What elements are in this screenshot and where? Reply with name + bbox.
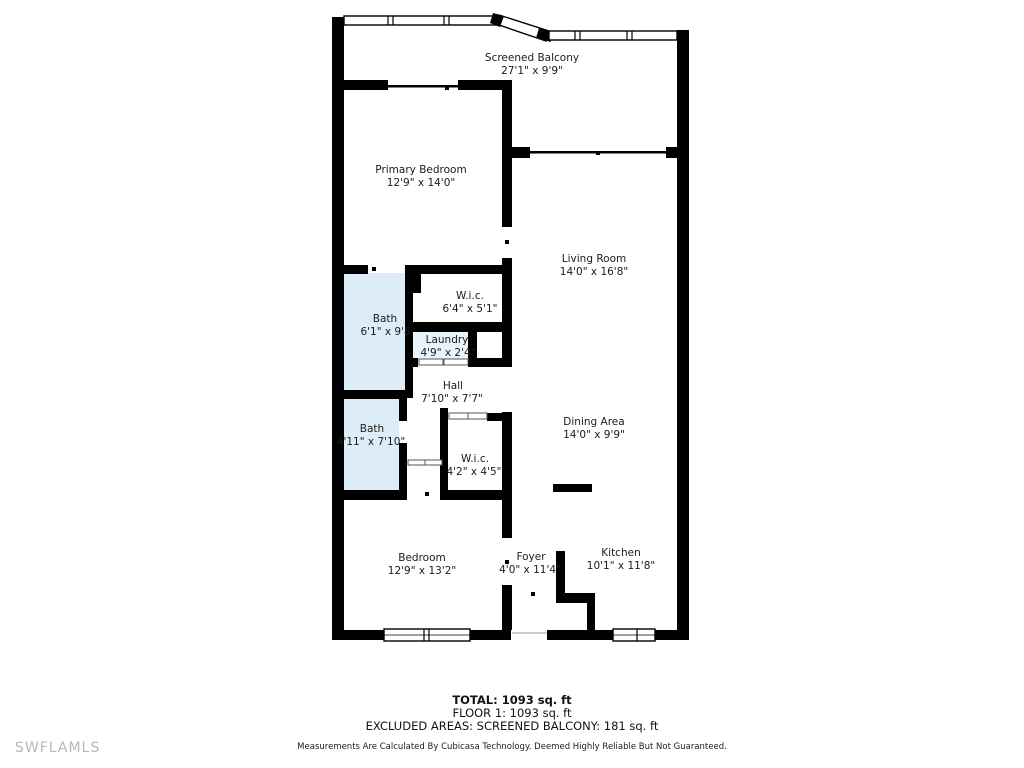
door-tick [425,492,429,496]
door-tick [531,592,535,596]
room-name: Bath [373,313,397,325]
entry-threshold [512,632,547,634]
room-label-wic-upper: W.i.c. 6'4" x 5'1" [442,290,497,315]
wall-segment [413,265,512,274]
room-dims: 7'10" x 7'7" [421,393,483,405]
wall-segment [440,408,448,500]
room-name: Screened Balcony [485,52,579,64]
wall-segment [405,358,418,367]
wall-segment [587,603,595,633]
wall-segment [332,80,388,90]
corridor-door-leaf [408,460,425,465]
room-dims: 12'9" x 13'2" [388,565,456,577]
room-label-laundry: Laundry 4'9" x 2'4" [420,334,475,359]
wall-segment [502,585,512,630]
wall-segment [332,490,407,500]
wall-segment [413,265,421,293]
wall-segment [332,390,407,399]
room-dims: 6'4" x 5'1" [442,303,497,315]
wic-door-leaf [449,413,468,419]
laundry-door-leaf [419,359,443,365]
wall-segment [502,80,512,158]
door-tick [505,240,509,244]
wall-segment [332,265,368,274]
room-dims: 4'2" x 4'5" [446,466,501,478]
room-label-screened-balcony: Screened Balcony 27'1" x 9'9" [485,52,579,77]
wall-segment [487,413,512,421]
wic-door-leaf [468,413,487,419]
wall-segment [502,258,512,366]
wall-segment [440,490,512,500]
wall-segment [399,399,407,421]
door-tick [445,86,449,90]
room-name: Kitchen [601,547,640,559]
wall-segment [332,17,344,640]
disclaimer-text: Measurements Are Calculated By Cubicasa … [0,742,1024,752]
room-dims: 6'1" x 9'8" [360,326,415,338]
floorplan-page: Screened Balcony 27'1" x 9'9" Primary Be… [0,0,1024,768]
room-name: Primary Bedroom [375,164,466,176]
wall-segment [502,158,512,227]
kitchen-counter-wall [553,484,592,492]
room-name: W.i.c. [456,290,484,302]
excluded-area-text: EXCLUDED AREAS: SCREENED BALCONY: 181 sq… [0,720,1024,733]
balcony-window [344,16,501,25]
room-label-foyer: Foyer 4'0" x 11'4" [499,551,561,576]
room-name: Hall [443,380,463,392]
wall-segment [654,630,689,640]
room-label-kitchen: Kitchen 10'1" x 11'8" [587,547,655,572]
wall-segment [502,147,530,158]
room-dims: 4'11" x 7'10" [337,436,405,448]
room-name: Bedroom [398,552,446,564]
wall-segment [666,147,689,158]
room-name: Living Room [562,253,626,265]
room-dims: 4'0" x 11'4" [499,564,561,576]
room-dims: 12'9" x 14'0" [387,177,455,189]
door-tick [372,267,376,271]
room-dims: 10'1" x 11'8" [587,560,655,572]
room-label-bedroom: Bedroom 12'9" x 13'2" [388,552,456,577]
wall-segment [332,630,384,640]
room-name: Bath [360,423,384,435]
balcony-window [549,31,677,40]
room-dims: 14'0" x 16'8" [560,266,628,278]
door-tick [596,151,600,155]
room-label-living-room: Living Room 14'0" x 16'8" [560,253,628,278]
room-dims: 14'0" x 9'9" [563,429,625,441]
wall-segment [677,30,689,640]
floorplan-svg: Screened Balcony 27'1" x 9'9" Primary Be… [0,0,1024,768]
room-label-hall: Hall 7'10" x 7'7" [421,380,483,405]
laundry-door-leaf [444,359,468,365]
summary-block: TOTAL: 1093 sq. ft FLOOR 1: 1093 sq. ft … [0,694,1024,752]
wall-segment [468,358,512,367]
wall-segment [399,443,407,492]
room-label-dining-area: Dining Area 14'0" x 9'9" [563,416,625,441]
room-dims: 27'1" x 9'9" [501,65,563,77]
room-name: Dining Area [563,416,624,428]
room-name: Foyer [516,551,546,563]
wall-segment [468,630,511,640]
wall-segment [547,630,614,640]
wall-segment [556,593,595,603]
corridor-door-leaf [425,460,442,465]
room-dims: 4'9" x 2'4" [420,347,475,359]
wall-segment [407,322,512,332]
room-label-wic-lower: W.i.c. 4'2" x 4'5" [446,453,501,478]
room-label-primary-bedroom: Primary Bedroom 12'9" x 14'0" [375,164,466,189]
room-name: Laundry [426,334,469,346]
room-name: W.i.c. [461,453,489,465]
watermark: SWFLAMLS [15,740,100,756]
wall-segment [502,412,512,538]
